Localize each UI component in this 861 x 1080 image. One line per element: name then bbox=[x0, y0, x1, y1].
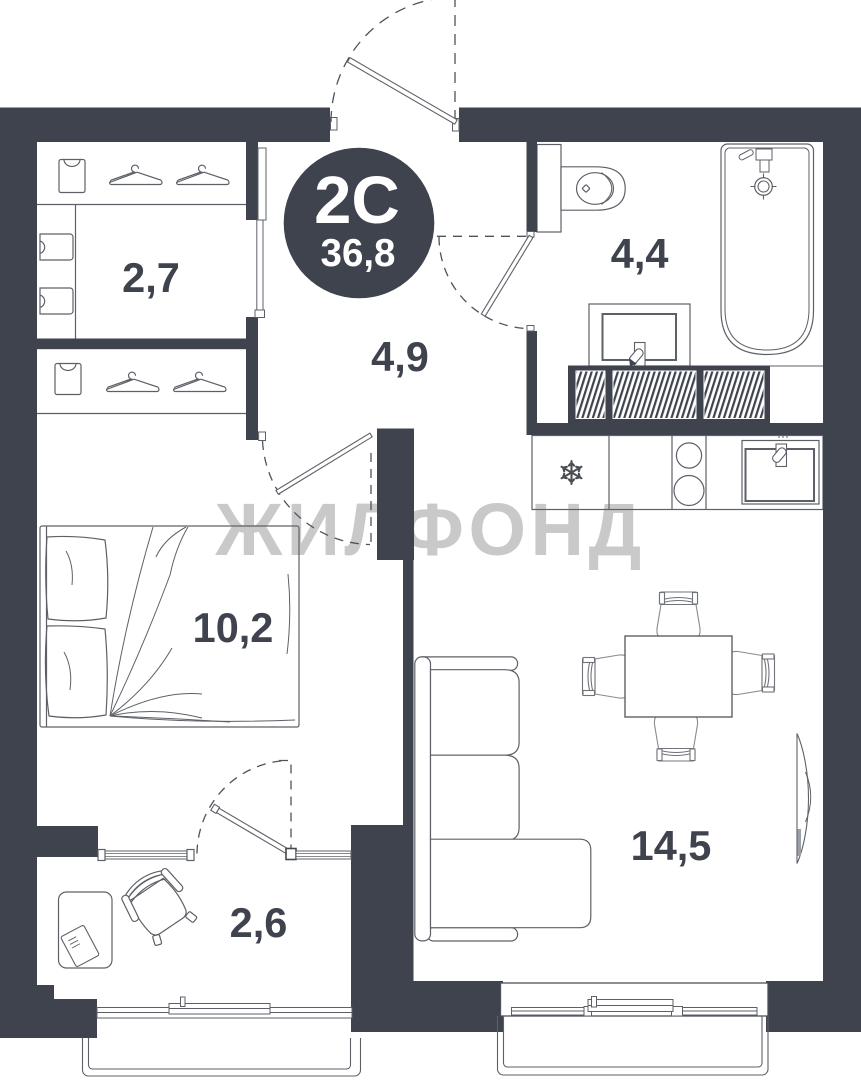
svg-text:4,9: 4,9 bbox=[371, 333, 429, 380]
svg-text:4,4: 4,4 bbox=[611, 230, 669, 277]
svg-text:ЖИЛФОНД: ЖИЛФОНД bbox=[214, 488, 645, 571]
svg-text:2,6: 2,6 bbox=[230, 899, 288, 946]
svg-text:2,7: 2,7 bbox=[122, 254, 180, 301]
svg-text:14,5: 14,5 bbox=[631, 822, 712, 869]
svg-text:10,2: 10,2 bbox=[193, 604, 274, 651]
svg-text:36,8: 36,8 bbox=[321, 232, 396, 275]
svg-text:2C: 2C bbox=[314, 163, 400, 238]
